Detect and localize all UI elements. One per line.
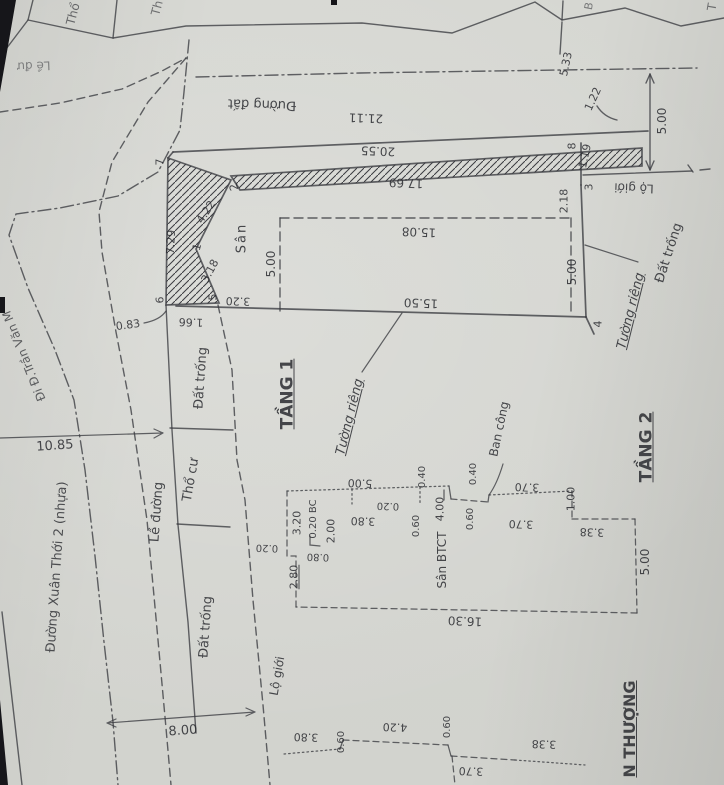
label-dim-10-85: 10.85: [36, 438, 74, 454]
label-dim-0-60-r1: 0.60: [337, 731, 347, 753]
label-dim-16-30: 16.30: [448, 614, 483, 627]
label-dim-3-70-r: 3.70: [459, 765, 484, 777]
label-dim-1-22: 1.22: [583, 86, 603, 113]
label-lo-gioi-ne: Lộ giới: [614, 181, 654, 194]
label-tuong-rieng-mid: Tường riêng: [334, 377, 366, 456]
label-dim-0-60-m: 0.60: [412, 515, 422, 537]
label-dim-3-20: 3.20: [226, 295, 251, 307]
label-dim-5-00-t2: 5.00: [639, 549, 651, 576]
label-parcel-letter-th: Th: [149, 0, 164, 17]
label-dat-trong-e: Đất trống: [653, 221, 685, 284]
label-parcel-letter-b: B: [583, 1, 595, 10]
label-dim-0-20-w: 0.20: [256, 542, 279, 553]
label-dim-1-66: 1.66: [179, 316, 204, 328]
label-pt-4: 4: [593, 321, 604, 328]
cadastral-plan-scan: ThổThBTLề đưĐường đất21.115.331.225.00Lộ…: [0, 0, 724, 785]
label-dim-3-80-t1: 3.80: [351, 515, 376, 527]
label-dim-3-38-t2: 3.38: [580, 526, 605, 538]
label-dim-3-70-bc: 3.70: [515, 481, 540, 493]
label-dim-0-40-m: 0.40: [418, 466, 428, 488]
label-lo-gioi-s: Lộ giới: [268, 656, 287, 697]
label-pt-3: 3: [584, 184, 595, 191]
label-tho-cu: Thổ cư: [181, 457, 201, 502]
label-dim-0-80: 0.80: [307, 551, 330, 562]
label-dim-5-00-ne: 5.00: [656, 108, 668, 135]
label-dim-2-80: 2.80: [289, 565, 300, 590]
label-dim-8-00: 8.00: [168, 724, 198, 739]
label-dim-2-00: 2.00: [326, 519, 337, 544]
label-dim-0-20-bc: 0.20 BC: [309, 499, 319, 538]
label-ban-cong: Ban công: [487, 400, 510, 457]
labels-layer: ThổThBTLề đưĐường đất21.115.331.225.00Lộ…: [0, 0, 724, 785]
label-dim-0-40-bc: 0.40: [469, 463, 479, 485]
label-dim-20-55: 20.55: [361, 144, 396, 157]
label-dim-7-29: 7.29: [165, 229, 177, 254]
label-san-btct: Sân BTCT: [436, 532, 448, 589]
label-pt-7: 7: [155, 159, 166, 166]
label-dim-1-19: 1.19: [577, 143, 593, 169]
label-tang-2: TẦNG 2: [639, 412, 656, 483]
label-pt-8: 8: [567, 143, 578, 150]
label-dim-2-18: 2.18: [559, 189, 570, 214]
label-le-duong-top: Lề đư: [17, 59, 51, 72]
label-pt-6: 6: [155, 297, 166, 304]
label-duong-dat: Đường đất: [228, 96, 297, 111]
label-dim-3-70-t2: 3.70: [509, 518, 534, 530]
label-dim-4-00: 4.00: [435, 497, 446, 522]
label-parcel-letter-tho: Thổ: [64, 2, 81, 27]
label-dim-0-60-bc: 0.60: [466, 508, 476, 530]
label-dim-4-20: 4.20: [383, 721, 408, 733]
label-dim-5-00-e: 5.00: [566, 259, 578, 286]
label-dim-0-60-r2: 0.60: [443, 716, 453, 738]
label-tang-1: TẦNG 1: [280, 359, 297, 430]
label-dat-trong-w1: Đất trống: [192, 347, 209, 410]
label-parcel-letter-t: T: [705, 2, 718, 11]
label-dim-15-50: 15.50: [404, 296, 439, 309]
label-dim-0-20-n: 0.20: [377, 500, 400, 511]
label-street-xuan-thoi-2: Đường Xuân Thới 2 (nhựa): [45, 481, 70, 653]
label-dim-15-08: 15.08: [402, 225, 437, 238]
label-pt-5: 5: [208, 294, 219, 301]
label-pt-2: 2: [228, 182, 240, 192]
label-san: Sân: [236, 223, 249, 253]
label-tuong-rieng-e: Tường riêng: [615, 271, 647, 350]
label-pt-1: 1: [191, 242, 203, 252]
label-street-di-tran-van: Đi Đ.Trần Văn M: [0, 309, 47, 403]
label-dat-trong-w2: Đất trống: [197, 596, 214, 659]
label-dim-3-18: 3.18: [199, 258, 220, 285]
label-dim-5-00-rect: 5.00: [265, 251, 277, 278]
label-dim-1-00: 1.00: [566, 487, 577, 512]
label-le-duong: Lề đường: [148, 481, 165, 542]
label-dim-5-33: 5.33: [558, 51, 574, 77]
label-dim-3-80-r: 3.80: [294, 731, 319, 743]
label-san-thuong: N THƯỢNG: [622, 680, 638, 777]
label-dim-0-83: 0.83: [115, 318, 141, 332]
label-dim-3-38-r: 3.38: [532, 738, 557, 750]
label-dim-21-11: 21.11: [349, 111, 384, 124]
label-dim-5-00-n: 5.00: [348, 477, 373, 489]
label-dim-3-20-w: 3.20: [292, 511, 303, 536]
label-dim-4-22: 4.22: [195, 199, 218, 226]
label-dim-17-69: 17.69: [389, 176, 424, 189]
